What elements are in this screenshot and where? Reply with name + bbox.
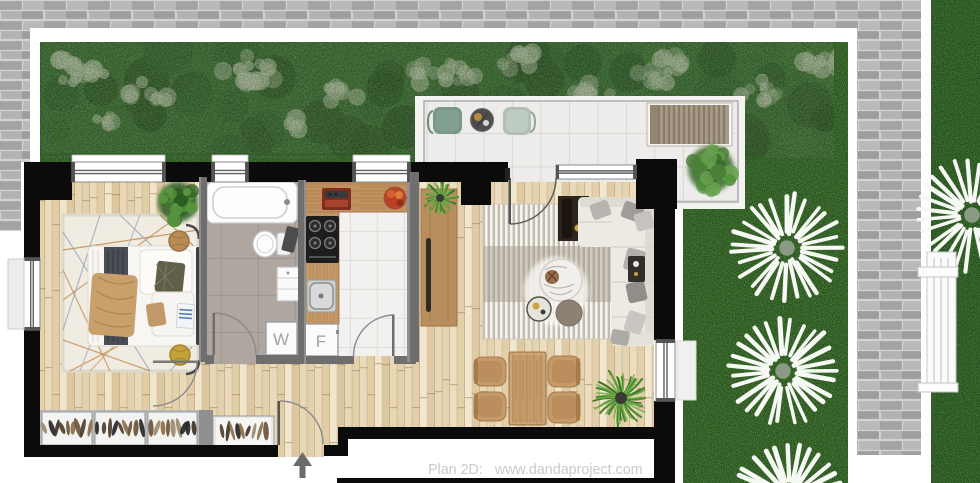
svg-text:Plan 2D: www.dandaproject.co: Plan 2D: www.dandaproject.com — [428, 462, 643, 478]
svg-text:W: W — [273, 330, 289, 349]
svg-text:F: F — [316, 332, 326, 351]
